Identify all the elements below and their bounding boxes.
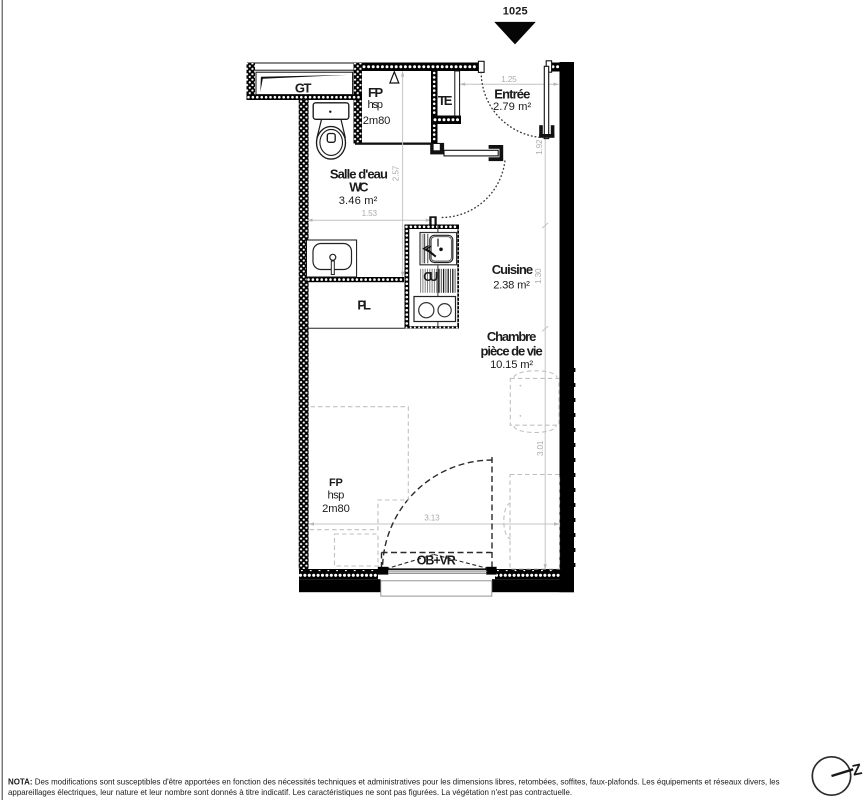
svg-text:2.79 m²: 2.79 m² xyxy=(493,101,531,113)
svg-text:2.38 m²: 2.38 m² xyxy=(493,279,530,291)
svg-text:3.01: 3.01 xyxy=(536,440,545,456)
svg-text:Z: Z xyxy=(851,761,864,780)
svg-text:WC: WC xyxy=(349,180,369,195)
svg-text:appareillages électriques, leu: appareillages électriques, leur nature e… xyxy=(8,788,572,797)
svg-text:2.57: 2.57 xyxy=(392,165,401,181)
svg-text:2m80: 2m80 xyxy=(363,115,391,127)
svg-text:FP: FP xyxy=(368,85,384,100)
svg-text:hsp: hsp xyxy=(328,490,345,502)
svg-text:TE: TE xyxy=(438,93,453,108)
svg-text:1025: 1025 xyxy=(503,6,528,18)
svg-text:2m80: 2m80 xyxy=(322,503,350,515)
svg-text:CU: CU xyxy=(423,270,438,284)
svg-text:NOTA: Des modifications sont s: NOTA: Des modifications sont susceptible… xyxy=(8,778,780,787)
svg-text:Entrée: Entrée xyxy=(494,86,530,101)
svg-text:10.15 m²: 10.15 m² xyxy=(490,359,533,371)
svg-text:hsp: hsp xyxy=(368,99,384,111)
svg-text:FP: FP xyxy=(329,477,343,489)
svg-text:1.25: 1.25 xyxy=(501,75,517,84)
svg-text:OB+VR: OB+VR xyxy=(417,554,456,568)
svg-text:3.46 m²: 3.46 m² xyxy=(339,195,378,207)
svg-text:PL: PL xyxy=(357,298,371,313)
svg-text:1.30: 1.30 xyxy=(534,268,543,284)
svg-text:1.92: 1.92 xyxy=(535,139,544,155)
svg-text:pièce de vie: pièce de vie xyxy=(481,343,543,358)
svg-text:3.13: 3.13 xyxy=(424,514,440,523)
svg-text:Chambre: Chambre xyxy=(487,329,536,344)
svg-text:1.53: 1.53 xyxy=(362,209,378,218)
svg-text:Cuisine: Cuisine xyxy=(492,262,533,277)
svg-text:GT: GT xyxy=(295,80,312,95)
